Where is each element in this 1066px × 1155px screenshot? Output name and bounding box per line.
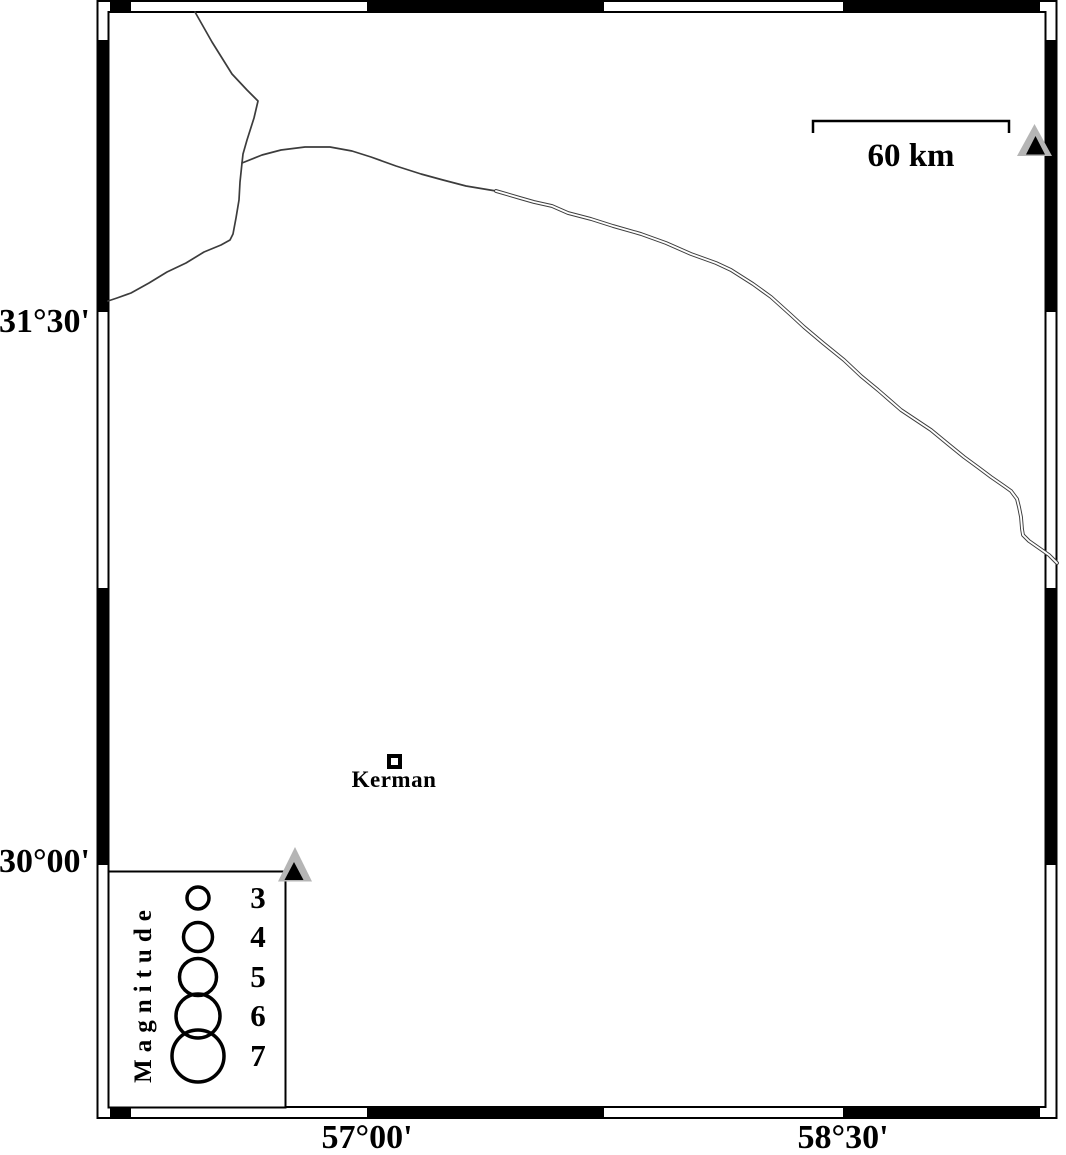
latitude-label: 30°00' xyxy=(0,842,90,882)
map-line-double-core xyxy=(496,191,1057,563)
frame-segment xyxy=(367,1,604,12)
map-line-main xyxy=(242,147,496,191)
frame-segment xyxy=(97,40,108,312)
legend-title: Magnitude xyxy=(129,880,159,1106)
map-line-double-casing xyxy=(496,191,1057,563)
magnitude-label: 4 xyxy=(238,918,278,956)
magnitude-label: 6 xyxy=(238,997,278,1035)
frame-segment xyxy=(843,1107,1040,1118)
latitude-label: 31°30' xyxy=(0,302,90,342)
frame-segment xyxy=(110,1,131,12)
magnitude-label: 7 xyxy=(238,1037,278,1075)
city-label: Kerman xyxy=(309,766,479,794)
map-lines xyxy=(108,12,1057,563)
longitude-label: 57°00' xyxy=(282,1118,452,1155)
magnitude-label: 5 xyxy=(238,958,278,996)
longitude-label: 58°30' xyxy=(758,1118,928,1155)
magnitude-label: 3 xyxy=(238,879,278,917)
frame-segment xyxy=(97,588,108,865)
map-line-branch xyxy=(108,12,258,301)
frame-segment xyxy=(367,1107,604,1118)
frame-segment xyxy=(843,1,1040,12)
frame-segment xyxy=(1046,40,1057,312)
frame-segment xyxy=(1046,588,1057,865)
scale-bar-label: 60 km xyxy=(826,140,996,172)
frame-segment xyxy=(110,1107,131,1118)
map-canvas: 31°30' 30°00' 57°00' 58°30' 60 km Kerman… xyxy=(0,0,1066,1155)
scale-bar xyxy=(813,121,1009,133)
station-triangle-icon xyxy=(278,847,312,882)
